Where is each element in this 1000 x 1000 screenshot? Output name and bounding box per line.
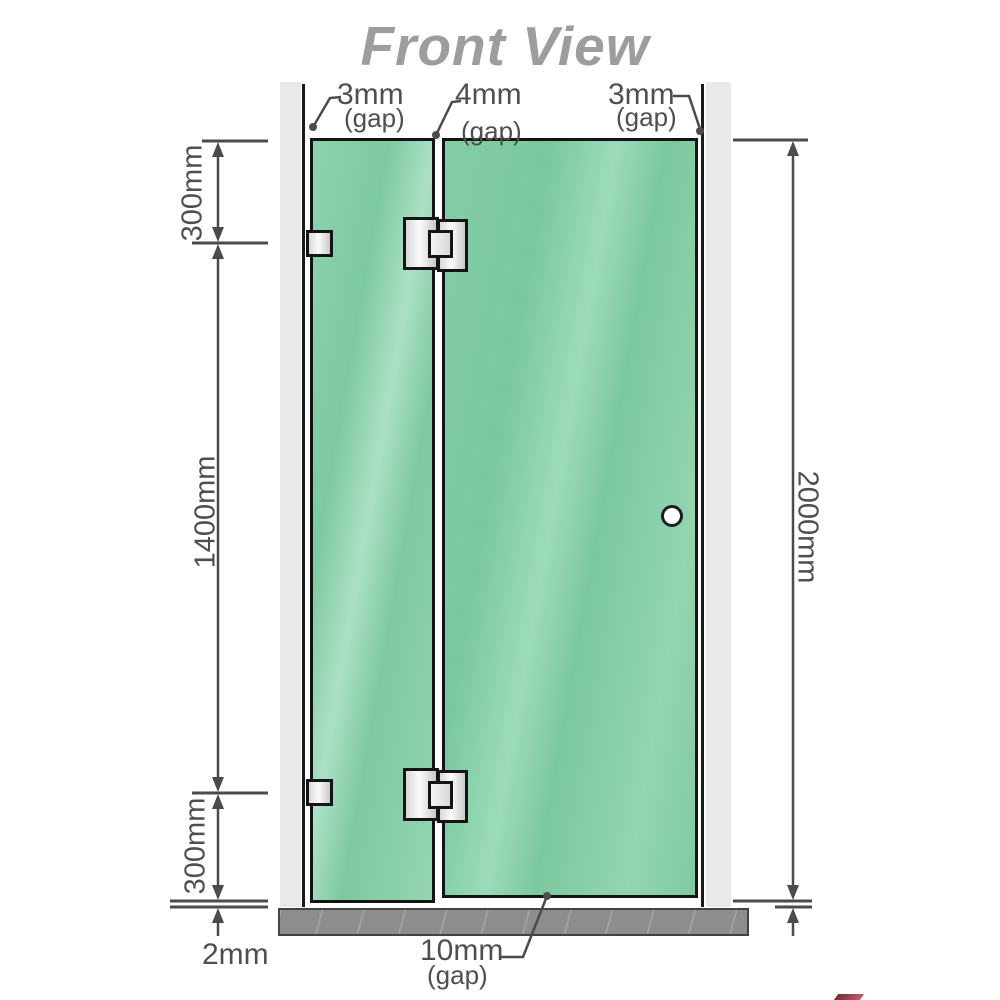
hinge-interlock-tab [428, 230, 453, 258]
label-segment-middle: 1400mm [192, 456, 221, 569]
left-wall-post [280, 82, 301, 907]
label-gap-middle-note: (gap) [461, 118, 522, 144]
glass-hinge-bottom [403, 766, 469, 826]
left-wall-edge-line [302, 84, 305, 907]
diagram-canvas: Front View [0, 0, 1000, 1000]
watermark-fragment [834, 994, 864, 1000]
label-floor-clearance: 2mm [202, 940, 269, 970]
label-gap-middle-value: 4mm [455, 80, 522, 110]
label-segment-bottom: 300mm [182, 798, 211, 895]
page-title: Front View [270, 14, 740, 78]
wall-bracket-top [306, 230, 333, 257]
door-knob [661, 505, 683, 527]
floor-base [278, 908, 749, 936]
hinge-interlock-tab [428, 781, 453, 809]
label-segment-top: 300mm [179, 145, 208, 242]
right-wall-post [706, 82, 731, 907]
label-total-height: 2000mm [793, 471, 822, 584]
label-gap-left-note: (gap) [344, 105, 405, 131]
glass-hinge-top [403, 215, 469, 275]
wall-bracket-bottom [306, 779, 333, 806]
label-door-floor-gap-note: (gap) [427, 962, 488, 988]
label-gap-right-note: (gap) [616, 104, 677, 130]
door-glass-panel [442, 138, 698, 898]
right-wall-edge-line [701, 84, 704, 907]
